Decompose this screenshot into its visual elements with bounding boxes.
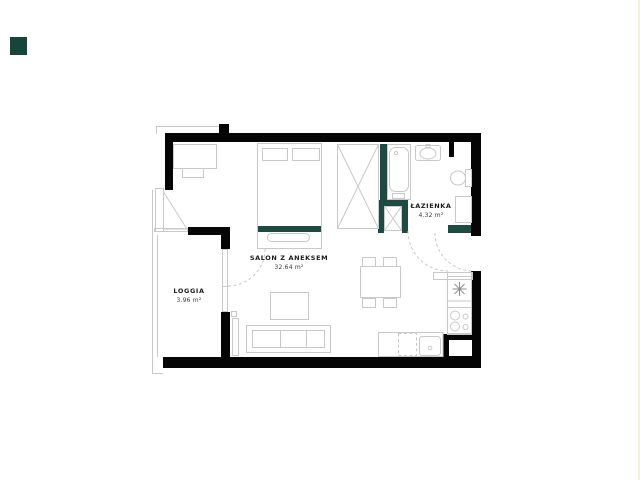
room-area: 3.96 m² [159,297,219,304]
kitchen-sink [420,337,441,356]
dishwasher [399,334,417,356]
dresser [174,145,217,169]
room-name: LOGGIA [159,287,219,295]
dresser-front [183,169,204,178]
accent-walls [257,144,471,233]
wall-left [165,133,173,190]
entry-door-arc [435,233,473,271]
wall-right-upper [471,133,481,236]
dining-table-set [361,258,401,308]
washbasin [416,145,441,161]
bathroom-door-arc [408,231,448,271]
accent-bathroom-left-wall [380,144,387,202]
sofa [247,326,331,353]
room-area: 32.64 m² [229,264,349,271]
wall-loggia-top [188,227,230,235]
room-name: ŁAZIENKA [396,202,466,210]
loggia-fixed-panel [223,287,228,312]
bathtub [388,145,411,200]
chair [384,299,397,308]
wall-top-stub [219,124,229,134]
bed-foot-roll [268,234,310,242]
wall-bottom [163,357,481,368]
accent-hall-bar [448,225,471,233]
chair [384,258,397,267]
room-name: SALON Z ANEKSEM [229,254,349,262]
loggia-door-leaf [223,250,228,287]
pillow-right [293,149,320,161]
wall-loggia-stub-upper [221,235,230,249]
floor-plan-drawing [0,0,640,480]
room-label-salon: SALON Z ANEKSEM 32.64 m² [229,254,349,271]
wardrobe-x [338,145,379,229]
floor-plan-canvas: SALON Z ANEKSEM 32.64 m² ŁAZIENKA 4.32 m… [0,0,640,480]
room-label-bathroom: ŁAZIENKA 4.32 m² [396,202,466,219]
loggia-rail [155,229,188,232]
coffee-table [271,293,309,320]
room-label-loggia: LOGGIA 3.96 m² [159,287,219,304]
wall-loggia-stub-lower [221,312,230,362]
pillow-left [263,149,288,161]
toilet [451,170,472,187]
window-left [156,188,188,232]
wall-duct-stub [449,142,454,157]
slab-outline [153,127,220,374]
radiator-valve [232,312,237,317]
wall-top [165,133,481,142]
radiator [233,319,239,356]
bed [258,144,322,249]
duct-bottom-right [449,340,472,356]
accent-bed-strip [257,226,322,232]
chair [363,258,376,267]
salon-furniture [232,258,401,356]
room-area: 4.32 m² [396,212,466,219]
dining-table [361,267,401,298]
chair [363,299,376,308]
cooktop [448,308,472,334]
fridge-icon [453,282,467,296]
